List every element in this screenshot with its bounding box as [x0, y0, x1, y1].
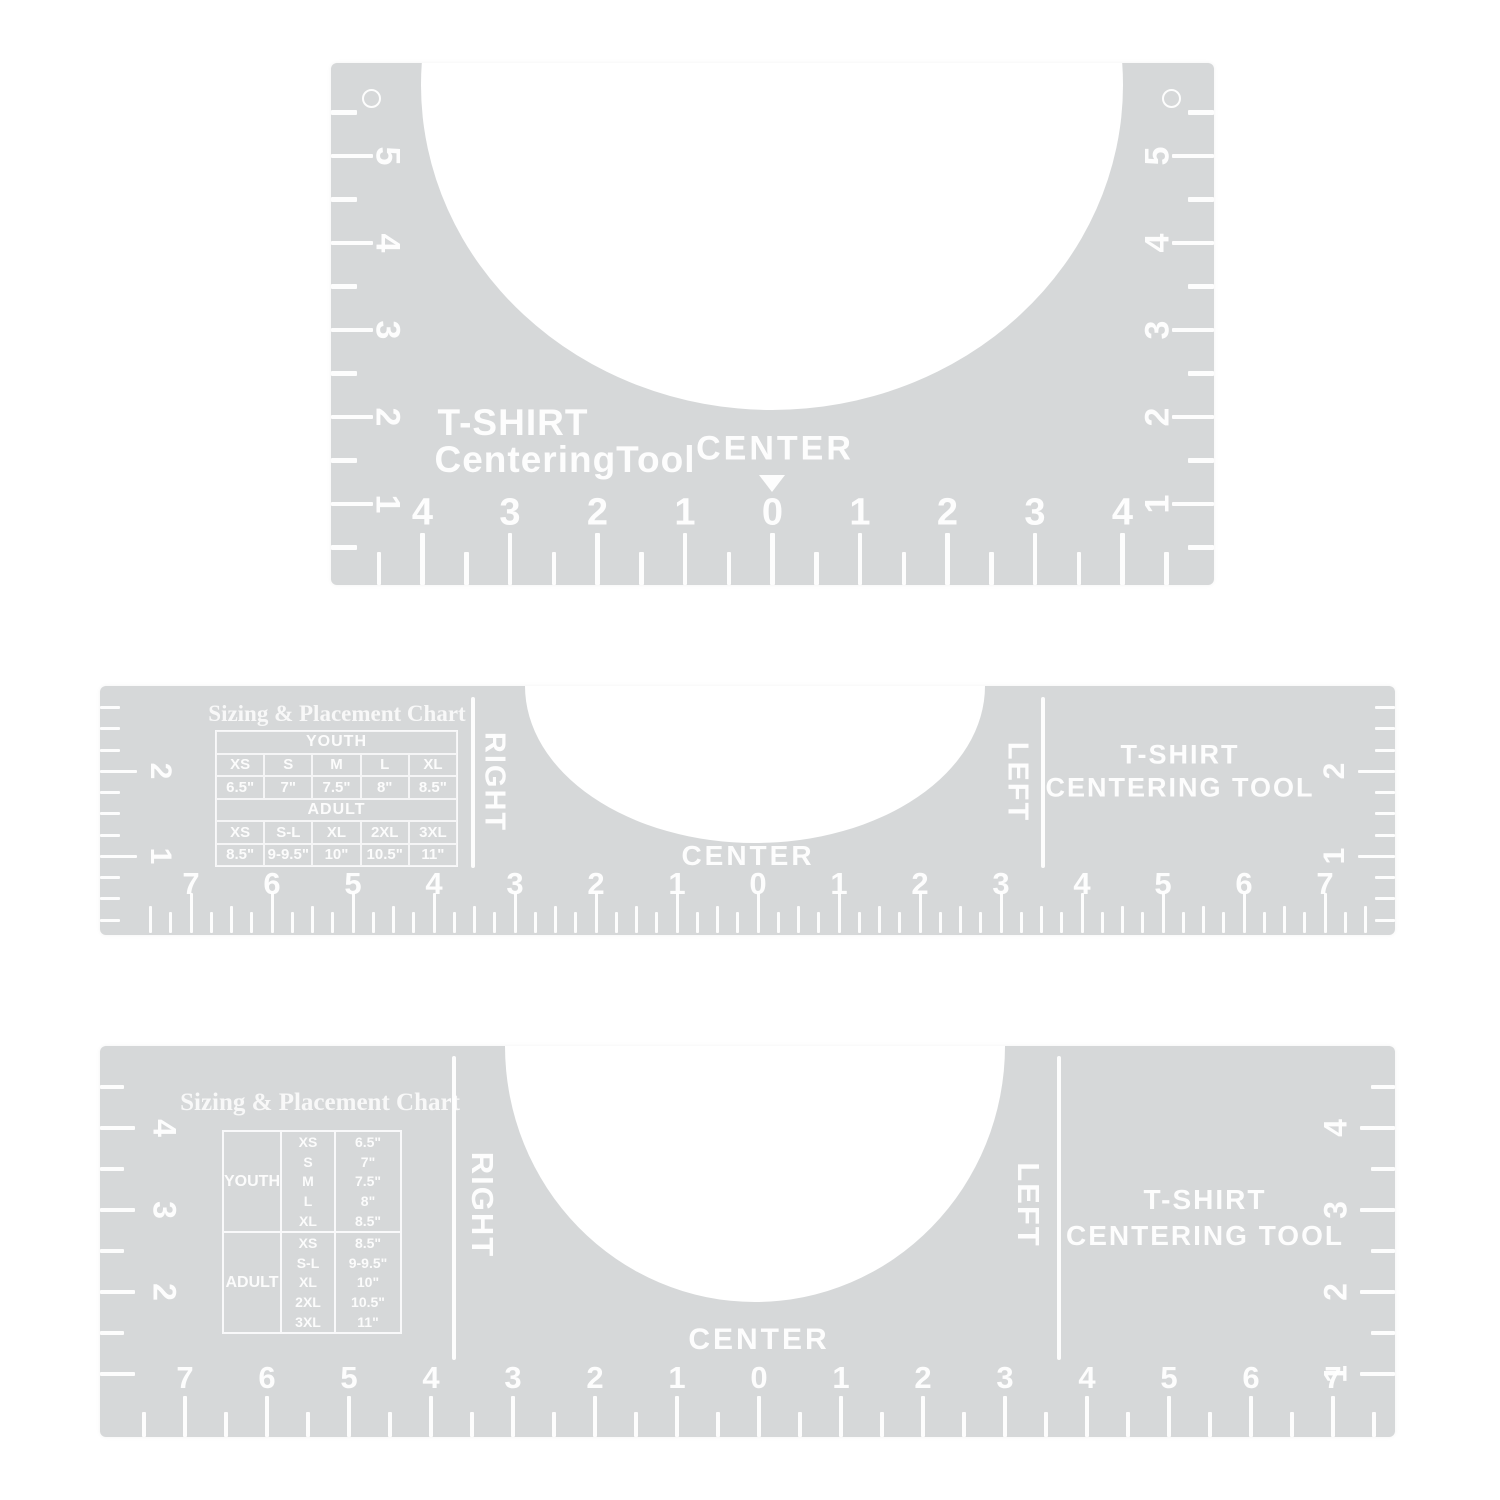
ruler-tick: [100, 1372, 135, 1376]
ruler-tick: [1172, 241, 1214, 246]
left-edge-scale-number: 2: [143, 763, 177, 780]
ruler-tick: [347, 1396, 351, 1437]
youth-size: XL: [409, 754, 457, 777]
tool-title-line1: T-SHIRT: [438, 402, 589, 444]
ruler-tick: [1182, 912, 1185, 933]
ruler-tick: [1141, 912, 1144, 933]
brand-line1: T-SHIRT: [1121, 740, 1240, 771]
ruler-tick: [508, 533, 513, 585]
ruler-tick: [331, 110, 357, 115]
bottom-scale-number: 0: [750, 1360, 767, 1396]
ruler-tick: [331, 371, 357, 376]
neckline-cutout: [505, 1046, 1005, 1302]
bottom-scale-number: 1: [674, 492, 695, 535]
ruler-tick: [1188, 371, 1214, 376]
ruler-tick: [100, 812, 120, 815]
bottom-scale-number: 0: [762, 492, 783, 535]
ruler-tick: [1375, 876, 1395, 879]
ruler-tick: [100, 706, 120, 709]
right-label: RIGHT: [478, 732, 511, 832]
ruler-tick: [1303, 912, 1306, 933]
left-edge-scale-number: 4: [146, 1119, 183, 1137]
youth-size: XL: [299, 1213, 317, 1229]
adult-value: 11": [409, 844, 457, 867]
ruler-tick: [100, 876, 120, 879]
youth-value: 7": [361, 1154, 375, 1170]
bottom-scale-number: 3: [992, 866, 1009, 902]
brand-line1: T-SHIRT: [1144, 1184, 1267, 1216]
right-edge-scale-number: 5: [1139, 147, 1178, 166]
ruler-tick: [1263, 912, 1266, 933]
adult-size: XL: [299, 1274, 317, 1290]
ruler-tick: [1003, 1396, 1007, 1437]
bottom-scale-number: 4: [425, 866, 442, 902]
sizing-chart-title: Sizing & Placement Chart: [180, 1089, 460, 1117]
ruler-tick: [183, 1396, 187, 1437]
ruler-tick: [291, 912, 294, 933]
sizing-placement-chart: YOUTH XS S M L XL 6.5" 7" 7.5" 8" 8.5" A…: [215, 730, 458, 867]
ruler-tick: [554, 906, 557, 933]
youth-size: L: [361, 754, 409, 777]
ruler-tick: [100, 1290, 135, 1294]
adult-value: 10.5": [351, 1294, 385, 1310]
adult-size: 2XL: [361, 821, 409, 844]
ruler-tick: [1371, 1167, 1395, 1171]
ruler-tick: [100, 855, 137, 858]
adult-value: 9-9.5": [349, 1255, 388, 1271]
right-edge-scale-number: 2: [1318, 1283, 1355, 1301]
youth-size: S: [303, 1154, 312, 1170]
ruler-tick: [1360, 1372, 1395, 1376]
ruler-tick: [902, 552, 907, 585]
ruler-tick: [1371, 1249, 1395, 1253]
tool-title-line2: CenteringTool: [434, 439, 695, 481]
ruler-tick: [898, 912, 901, 933]
bottom-scale-number: 3: [996, 1360, 1013, 1396]
ruler-tick: [655, 912, 658, 933]
ruler-tick: [1188, 197, 1214, 202]
ruler-tick: [798, 1412, 802, 1437]
ruler-tick: [100, 727, 120, 730]
right-label: RIGHT: [464, 1152, 500, 1258]
ruler-tick: [230, 906, 233, 933]
tshirt-centering-tool-slim-ruler: Sizing & Placement Chart YOUTH XS S M L …: [100, 686, 1395, 935]
ruler-tick: [100, 749, 120, 752]
ruler-tick: [1126, 1412, 1130, 1437]
ruler-tick: [757, 1396, 761, 1437]
ruler-tick: [1249, 1396, 1253, 1437]
ruler-tick: [1020, 912, 1023, 933]
bottom-scale-number: 1: [830, 866, 847, 902]
bottom-scale-number: 1: [832, 1360, 849, 1396]
bottom-scale-number: 2: [587, 866, 604, 902]
brand-line2: CENTERING TOOL: [1066, 1220, 1344, 1252]
ruler-tick: [420, 533, 425, 585]
adult-size: XL: [312, 821, 360, 844]
left-divider-line: [1041, 697, 1045, 868]
ruler-tick: [100, 791, 120, 794]
left-divider-line: [1057, 1056, 1061, 1360]
bottom-scale-number: 4: [1078, 1360, 1095, 1396]
bottom-scale-number: 6: [258, 1360, 275, 1396]
ruler-tick: [1371, 1331, 1395, 1335]
ruler-tick: [1375, 834, 1395, 837]
ruler-tick: [1222, 912, 1225, 933]
ruler-tick: [331, 545, 357, 550]
tshirt-centering-tool-square: T-SHIRT CenteringTool CENTER 54321543214…: [331, 63, 1214, 585]
ruler-tick: [412, 912, 415, 933]
adult-size: 2XL: [295, 1294, 321, 1310]
adult-size: S-L: [297, 1255, 320, 1271]
ruler-tick: [696, 912, 699, 933]
youth-size: XS: [216, 754, 264, 777]
bottom-scale-number: 3: [504, 1360, 521, 1396]
adult-value: 10": [357, 1274, 379, 1290]
ruler-tick: [1358, 855, 1395, 858]
ruler-tick: [1202, 906, 1205, 933]
center-label: CENTER: [688, 1323, 829, 1357]
bottom-scale-number: 2: [587, 492, 608, 535]
bottom-scale-number: 5: [1154, 866, 1171, 902]
ruler-tick: [1060, 912, 1063, 933]
ruler-tick: [331, 284, 357, 289]
product-photo-canvas: T-SHIRT CenteringTool CENTER 54321543214…: [0, 0, 1500, 1500]
ruler-tick: [1375, 919, 1395, 922]
neckline-cutout: [421, 63, 1123, 410]
ruler-tick: [493, 912, 496, 933]
ruler-tick: [1188, 545, 1214, 550]
ruler-tick: [1375, 749, 1395, 752]
ruler-tick: [473, 906, 476, 933]
ruler-tick: [224, 1412, 228, 1437]
left-edge-scale-number: 5: [368, 147, 407, 166]
ruler-tick: [675, 1396, 679, 1437]
left-edge-scale-number: 1: [143, 848, 177, 865]
center-pointer-icon: [759, 475, 785, 492]
bottom-scale-number: 4: [412, 492, 433, 535]
youth-size: S: [264, 754, 312, 777]
ruler-tick: [1208, 1412, 1212, 1437]
bottom-scale-number: 6: [1235, 866, 1252, 902]
right-edge-scale-number: 4: [1139, 234, 1178, 253]
left-label: LEFT: [1001, 742, 1034, 823]
bottom-scale-number: 2: [586, 1360, 603, 1396]
adult-sizes: XS S-L XL 2XL 3XL: [282, 1233, 336, 1332]
bottom-scale-number: 5: [340, 1360, 357, 1396]
ruler-tick: [453, 912, 456, 933]
adult-value: 10.5": [361, 844, 409, 867]
ruler-tick: [736, 912, 739, 933]
youth-size: M: [312, 754, 360, 777]
ruler-tick: [1172, 328, 1214, 333]
ruler-tick: [921, 1396, 925, 1437]
ruler-tick: [1360, 1126, 1395, 1130]
bottom-scale-number: 6: [1242, 1360, 1259, 1396]
left-edge-scale-number: 3: [146, 1201, 183, 1219]
adult-header: ADULT: [224, 1233, 282, 1332]
youth-sizes: XS S M L XL: [282, 1132, 336, 1231]
bottom-scale-number: 1: [849, 492, 870, 535]
ruler-tick: [817, 912, 820, 933]
bottom-scale-number: 1: [668, 1360, 685, 1396]
adult-size: 3XL: [409, 821, 457, 844]
ruler-tick: [962, 1412, 966, 1437]
youth-size: M: [302, 1173, 314, 1189]
ruler-tick: [880, 1412, 884, 1437]
right-divider-line: [452, 1056, 456, 1360]
center-label: CENTER: [696, 430, 854, 469]
ruler-tick: [331, 197, 357, 202]
ruler-tick: [1375, 812, 1395, 815]
bottom-scale-number: 2: [937, 492, 958, 535]
right-edge-scale-number: 1: [1139, 495, 1178, 514]
ruler-tick: [100, 1167, 124, 1171]
left-edge-scale-number: 2: [146, 1283, 183, 1301]
youth-size: L: [304, 1193, 313, 1209]
ruler-tick: [1077, 552, 1082, 585]
ruler-tick: [683, 533, 688, 585]
ruler-tick: [1331, 1396, 1335, 1437]
ruler-tick: [100, 897, 120, 900]
left-edge-scale-number: 3: [368, 321, 407, 340]
ruler-tick: [1164, 552, 1169, 585]
left-edge-scale-number: 1: [368, 495, 407, 514]
bottom-scale-number: 1: [668, 866, 685, 902]
ruler-tick: [331, 912, 334, 933]
ruler-tick: [511, 1396, 515, 1437]
adult-value: 11": [357, 1314, 378, 1330]
ruler-tick: [1375, 706, 1395, 709]
adult-value: 9-9.5": [264, 844, 312, 867]
youth-value: 7.5": [355, 1173, 381, 1189]
bottom-scale-number: 4: [1112, 492, 1133, 535]
ruler-tick: [1375, 897, 1395, 900]
ruler-tick: [100, 1208, 135, 1212]
ruler-tick: [574, 912, 577, 933]
ruler-tick: [1360, 1290, 1395, 1294]
ruler-tick: [1121, 906, 1124, 933]
bottom-scale-number: 3: [1024, 492, 1045, 535]
ruler-tick: [639, 552, 644, 585]
right-divider-line: [471, 697, 475, 868]
ruler-tick: [878, 906, 881, 933]
bottom-scale-number: 7: [1316, 866, 1333, 902]
ruler-tick: [429, 1396, 433, 1437]
adult-size: 3XL: [295, 1314, 321, 1330]
bottom-scale-number: 6: [263, 866, 280, 902]
ruler-tick: [979, 912, 982, 933]
youth-header: YOUTH: [224, 1132, 282, 1231]
ruler-tick: [100, 1249, 124, 1253]
ruler-tick: [100, 919, 120, 922]
ruler-tick: [100, 1331, 124, 1335]
ruler-tick: [1360, 1208, 1395, 1212]
ruler-tick: [372, 912, 375, 933]
youth-value: 8.5": [355, 1213, 381, 1229]
ruler-tick: [858, 912, 861, 933]
ruler-tick: [464, 552, 469, 585]
adult-value: 8.5": [216, 844, 264, 867]
ruler-tick: [306, 1412, 310, 1437]
ruler-tick: [1290, 1412, 1294, 1437]
youth-value: 8": [361, 776, 409, 799]
youth-block: YOUTH XS S M L XL 6.5" 7" 7.5" 8" 8.5": [224, 1132, 400, 1233]
youth-value: 7": [264, 776, 312, 799]
youth-header: YOUTH: [216, 731, 457, 754]
ruler-tick: [595, 533, 600, 585]
ruler-tick: [858, 533, 863, 585]
ruler-tick: [797, 906, 800, 933]
hanging-hole-right: [1162, 89, 1181, 108]
ruler-tick: [635, 906, 638, 933]
ruler-tick: [1172, 154, 1214, 159]
ruler-tick: [1371, 1085, 1395, 1089]
adult-values: 8.5" 9-9.5" 10" 10.5" 11": [336, 1233, 400, 1332]
ruler-tick: [1344, 912, 1347, 933]
ruler-tick: [1283, 906, 1286, 933]
youth-size: XS: [299, 1134, 318, 1150]
ruler-tick: [534, 912, 537, 933]
ruler-tick: [939, 912, 942, 933]
ruler-tick: [1044, 1412, 1048, 1437]
right-edge-scale-number: 1: [1318, 848, 1352, 865]
ruler-tick: [1085, 1396, 1089, 1437]
hanging-hole-left: [362, 89, 381, 108]
ruler-tick: [1375, 791, 1395, 794]
ruler-tick: [1188, 110, 1214, 115]
ruler-tick: [727, 552, 732, 585]
ruler-tick: [100, 1085, 124, 1089]
ruler-tick: [100, 770, 137, 773]
adult-block: ADULT XS S-L XL 2XL 3XL 8.5" 9-9.5" 10" …: [224, 1233, 400, 1332]
ruler-tick: [169, 912, 172, 933]
youth-value: 8.5": [409, 776, 457, 799]
right-edge-scale-number: 4: [1318, 1119, 1355, 1137]
ruler-tick: [1101, 912, 1104, 933]
ruler-tick: [377, 552, 382, 585]
ruler-tick: [1372, 1412, 1376, 1437]
bottom-scale-number: 7: [1324, 1360, 1341, 1396]
youth-value: 6.5": [355, 1134, 381, 1150]
tshirt-centering-tool-wide-ruler: Sizing & Placement Chart YOUTH XS S M L …: [100, 1046, 1395, 1437]
ruler-tick: [149, 906, 152, 933]
right-edge-scale-number: 2: [1139, 408, 1178, 427]
bottom-scale-number: 2: [911, 866, 928, 902]
ruler-tick: [392, 906, 395, 933]
youth-values: 6.5" 7" 7.5" 8" 8.5": [336, 1132, 400, 1231]
ruler-tick: [552, 1412, 556, 1437]
ruler-tick: [552, 552, 557, 585]
ruler-tick: [265, 1396, 269, 1437]
bottom-scale-number: 5: [1160, 1360, 1177, 1396]
ruler-tick: [770, 533, 775, 585]
ruler-tick: [777, 912, 780, 933]
left-label: LEFT: [1010, 1162, 1046, 1248]
ruler-tick: [1364, 906, 1367, 933]
bottom-scale-number: 5: [344, 866, 361, 902]
adult-value: 8.5": [355, 1235, 381, 1251]
ruler-tick: [1172, 502, 1214, 507]
center-label: CENTER: [681, 840, 814, 872]
ruler-tick: [634, 1412, 638, 1437]
adult-size: XS: [299, 1235, 318, 1251]
ruler-tick: [142, 1412, 146, 1437]
bottom-scale-number: 2: [914, 1360, 931, 1396]
ruler-tick: [1375, 727, 1395, 730]
youth-value: 7.5": [312, 776, 360, 799]
ruler-tick: [331, 458, 357, 463]
ruler-tick: [615, 912, 618, 933]
sizing-placement-chart: YOUTH XS S M L XL 6.5" 7" 7.5" 8" 8.5" A…: [222, 1130, 402, 1334]
sizing-chart-title: Sizing & Placement Chart: [208, 701, 465, 727]
bottom-scale-number: 3: [506, 866, 523, 902]
ruler-tick: [210, 912, 213, 933]
bottom-scale-number: 4: [1073, 866, 1090, 902]
bottom-scale-number: 0: [749, 866, 766, 902]
bottom-scale-number: 3: [499, 492, 520, 535]
ruler-tick: [1172, 415, 1214, 420]
ruler-tick: [250, 912, 253, 933]
ruler-tick: [1040, 906, 1043, 933]
right-edge-scale-number: 2: [1318, 763, 1352, 780]
ruler-tick: [716, 906, 719, 933]
adult-header: ADULT: [216, 799, 457, 822]
ruler-tick: [1188, 458, 1214, 463]
ruler-tick: [1120, 533, 1125, 585]
adult-size: XS: [216, 821, 264, 844]
ruler-tick: [989, 552, 994, 585]
ruler-tick: [388, 1412, 392, 1437]
bottom-scale-number: 7: [182, 866, 199, 902]
ruler-tick: [1358, 770, 1395, 773]
ruler-tick: [1188, 284, 1214, 289]
ruler-tick: [1033, 533, 1038, 585]
youth-value: 8": [361, 1193, 375, 1209]
adult-value: 10": [312, 844, 360, 867]
bottom-scale-number: 4: [422, 1360, 439, 1396]
ruler-tick: [945, 533, 950, 585]
ruler-tick: [716, 1412, 720, 1437]
ruler-tick: [839, 1396, 843, 1437]
neckline-cutout: [525, 686, 985, 843]
ruler-tick: [593, 1396, 597, 1437]
brand-line2: CENTERING TOOL: [1045, 773, 1314, 804]
left-edge-scale-number: 4: [368, 234, 407, 253]
ruler-tick: [959, 906, 962, 933]
ruler-tick: [814, 552, 819, 585]
youth-value: 6.5": [216, 776, 264, 799]
right-edge-scale-number: 3: [1318, 1201, 1355, 1219]
ruler-tick: [100, 834, 120, 837]
ruler-tick: [100, 1126, 135, 1130]
left-edge-scale-number: 2: [368, 408, 407, 427]
adult-size: S-L: [264, 821, 312, 844]
ruler-tick: [1167, 1396, 1171, 1437]
bottom-scale-number: 7: [176, 1360, 193, 1396]
ruler-tick: [470, 1412, 474, 1437]
ruler-tick: [311, 906, 314, 933]
right-edge-scale-number: 3: [1139, 321, 1178, 340]
